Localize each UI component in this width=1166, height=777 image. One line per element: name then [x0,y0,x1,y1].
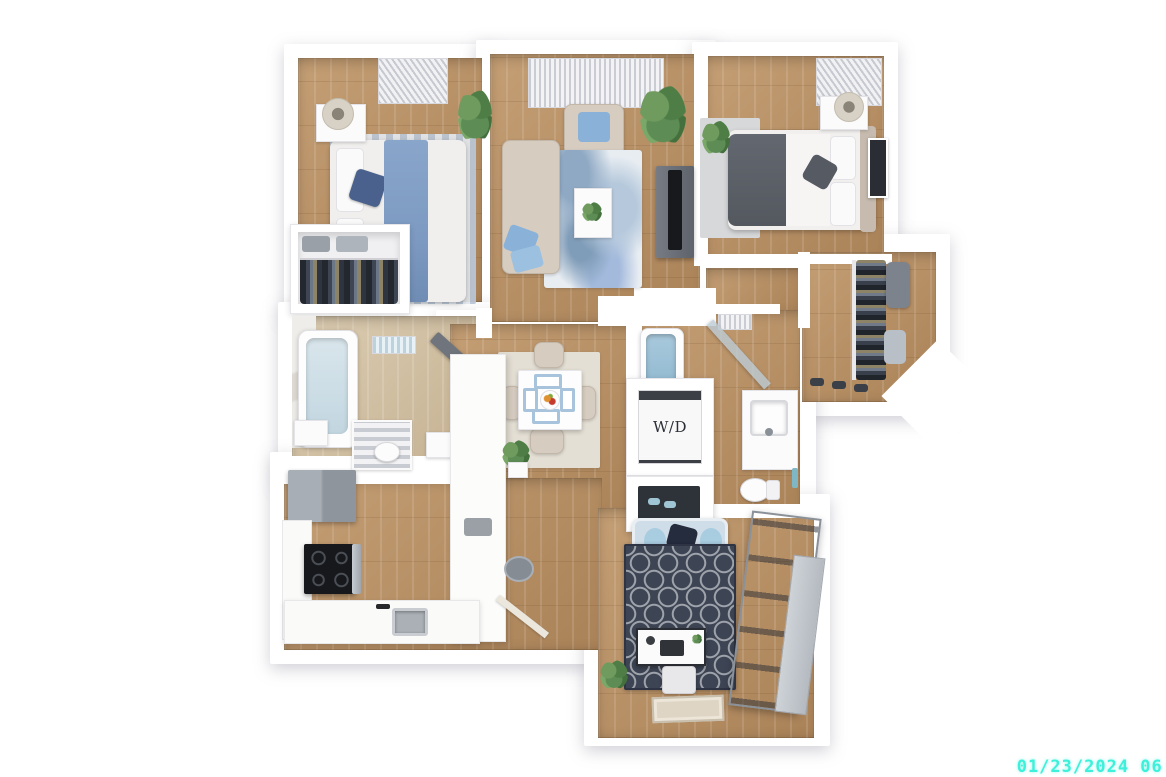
stove-cooktop [304,544,356,594]
timestamp-watermark: 01/23/2024 06: [1017,757,1166,777]
storage-bin-b [336,236,368,252]
placemat-top [534,374,562,389]
blanket-bedroom-2 [728,134,786,226]
dining-chair-top [534,342,564,368]
desk-chair-den [662,666,696,694]
towel-bathroom-2 [792,468,798,488]
hanging-clothes-walkin [856,260,886,380]
wall-hall-bath2 [700,304,780,314]
plant-bedroom-2 [702,120,730,156]
peninsula-appliance [464,518,492,536]
entry-doormat [652,695,725,723]
lamp-bedroom-2 [834,92,864,122]
hanging-clothes-closet-1 [300,258,398,304]
wall-art-bedroom-2 [868,138,888,198]
floor-plan-render: W/D 01/23/2024 06: [0,0,1166,777]
storage-bin-a [302,236,330,252]
fruit-plate [540,390,560,410]
desk-plant [692,634,702,644]
refrigerator [288,470,356,522]
toilet-tank-bathroom-2 [766,480,780,500]
slippers-a [648,498,660,505]
plant-bedroom-1 [458,88,492,144]
slippers-b [664,501,676,508]
wall-hall-walkin [798,252,810,328]
wall-unit-walkin [886,262,910,308]
pillow-bedroom-2-b [830,182,856,226]
toilet-bathroom-1 [374,442,400,462]
armchair-cushion-blue [578,112,610,142]
faucet-bathroom-2 [765,428,773,436]
counter-utensil [376,604,390,609]
ironing-board-walkin [884,330,906,364]
wall-bath1-dining-top [476,308,492,338]
plant-living-tall [640,84,686,148]
plant-den [600,660,628,690]
tv-screen [668,170,682,250]
shoes-walkin-a [810,378,824,386]
cabinet-bathroom-1 [294,420,328,446]
laptop-den [660,640,684,656]
placemat-right [560,388,575,412]
washer-dryer-label: W/D [639,391,701,463]
lamp-bedroom-1 [322,98,354,130]
oven-handle [352,544,361,594]
washer-dryer-unit: W/D [638,390,702,464]
ceiling-vent-bathroom-1 [372,336,416,354]
bar-stool [504,556,534,582]
dining-chair-bottom [530,428,564,454]
ceiling-vent-bathroom-2 [718,314,752,330]
desk-lamp [646,636,655,645]
placemat-left [523,388,538,412]
kitchen-sink [392,608,428,636]
wall-living-den-corner [598,296,644,326]
shoes-walkin-c [854,384,868,392]
coffee-table-plant [582,202,602,222]
ceiling-vent-bedroom-1 [378,58,448,104]
shoes-walkin-b [832,381,846,389]
plant-pot-dining [508,462,528,478]
